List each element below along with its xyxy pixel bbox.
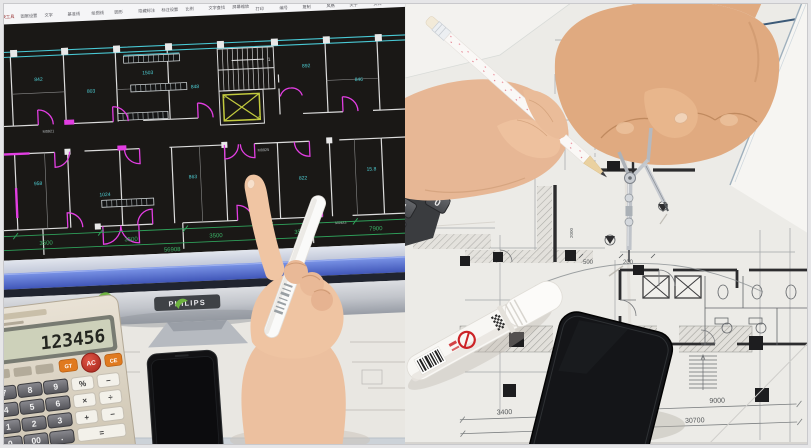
toolbar-icon: [260, 0, 265, 4]
dim-text-vertical: 2000: [569, 227, 574, 238]
ac-key-label: AC: [86, 360, 96, 368]
toolbar-icon: [307, 0, 312, 2]
dim-text: 3400: [497, 409, 513, 417]
door-tag: M0925: [258, 148, 270, 153]
photo-composite: 图块工具 图层设置 文字 基准线 绘图线 圆形 隐藏标注 标注设置 比例 文字查…: [0, 0, 811, 448]
room-label: 846: [355, 77, 364, 83]
dim-label: 3500: [39, 240, 53, 247]
op-key-label: %: [79, 379, 87, 389]
philips-logo: PHILIPS: [168, 298, 206, 309]
dim-total: 56908: [164, 247, 182, 254]
room-label: 842: [34, 77, 43, 83]
desk-calculator: 123456 GT AC CE 7 8 9: [0, 294, 137, 448]
ce-key-label: CE: [109, 358, 118, 365]
left-photo-panel: 图块工具 图层设置 文字 基准线 绘图线 圆形 隐藏标注 标注设置 比例 文字查…: [0, 0, 405, 448]
phone-screen[interactable]: [151, 356, 219, 448]
compass-collar: [626, 206, 633, 216]
toolbar-icon: [284, 0, 289, 3]
dim-label: 3500: [209, 233, 223, 240]
room-label: 892: [302, 63, 311, 69]
room-label: 958: [34, 181, 43, 187]
dim-label: 7900: [369, 226, 383, 233]
compass-joint: [625, 194, 633, 202]
digit-key-label: 00: [31, 435, 42, 446]
left-scene: 图块工具 图层设置 文字 基准线 绘图线 圆形 隐藏标注 标注设置 比例 文字查…: [0, 0, 405, 448]
room-label: 822: [299, 175, 308, 181]
right-photo-panel: 500 200 2000 3400 9000 30700: [405, 0, 811, 448]
room-label: 1024: [99, 192, 111, 198]
right-scene: 500 200 2000 3400 9000 30700: [405, 0, 811, 448]
dim-text: 9000: [709, 397, 725, 405]
door-tag: M0921: [43, 129, 55, 134]
stair-label: 1: [268, 57, 271, 63]
room-label: 1503: [142, 70, 154, 76]
gt-key-label: GT: [64, 363, 73, 370]
dim-label: 3500: [124, 237, 138, 244]
room-label: 15.8: [366, 166, 376, 172]
room-label: 863: [189, 174, 198, 180]
room-label: 803: [87, 88, 96, 94]
smartphone: [147, 350, 224, 448]
dim-text: 30700: [685, 417, 705, 425]
room-label: 848: [191, 84, 200, 90]
dim-text: 500: [583, 260, 594, 266]
